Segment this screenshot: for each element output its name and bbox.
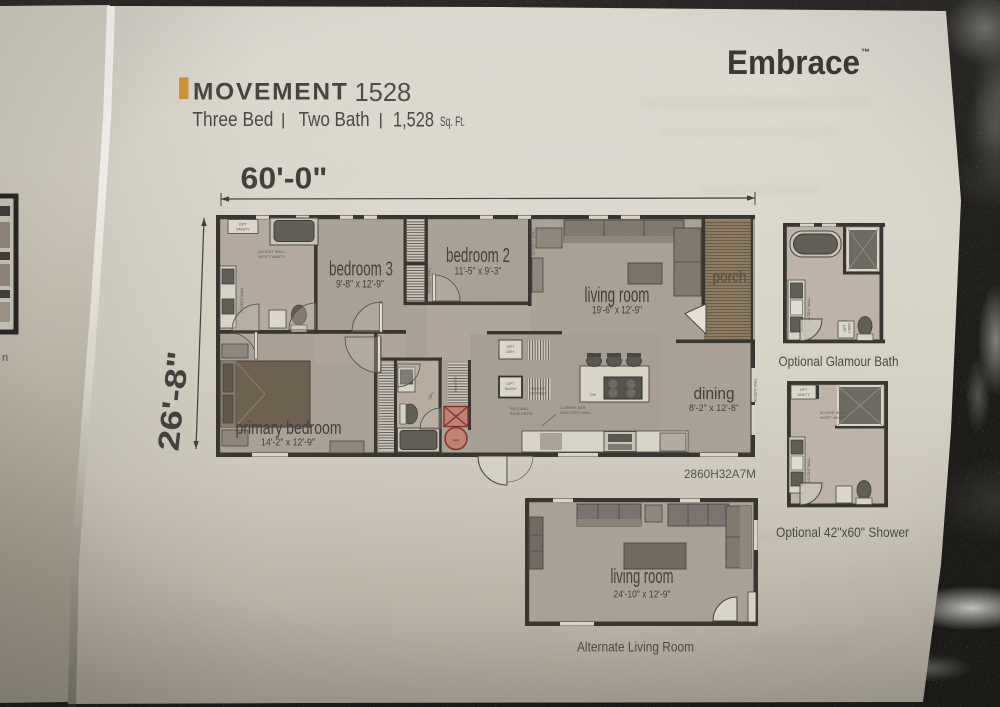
svg-text:bedroom 3: bedroom 3 bbox=[329, 259, 393, 281]
svg-text:ACCENT WALL: ACCENT WALL bbox=[258, 250, 285, 254]
svg-text:WH: WH bbox=[453, 438, 460, 443]
svg-text:|: | bbox=[281, 110, 285, 129]
svg-text:OPT: OPT bbox=[800, 388, 808, 392]
svg-text:VANITY: VANITY bbox=[236, 227, 250, 232]
svg-text:Two Bath: Two Bath bbox=[299, 109, 370, 131]
svg-text:ACCENT WALL: ACCENT WALL bbox=[820, 411, 845, 415]
svg-text:™: ™ bbox=[861, 47, 870, 57]
svg-text:9'-8" x 12'-9": 9'-8" x 12'-9" bbox=[336, 279, 384, 291]
svg-text:CORNER BAR: CORNER BAR bbox=[560, 406, 586, 410]
svg-text:2860H32A7M: 2860H32A7M bbox=[684, 467, 756, 481]
svg-text:PANTRY: PANTRY bbox=[531, 387, 546, 391]
svg-text:ACCENT WALL: ACCENT WALL bbox=[532, 229, 536, 256]
svg-text:1,528: 1,528 bbox=[393, 109, 434, 132]
svg-text:VANITY: VANITY bbox=[797, 393, 810, 397]
svg-text:24'-10" x 12'-9": 24'-10" x 12'-9" bbox=[614, 589, 671, 601]
svg-text:ACCENT WALL: ACCENT WALL bbox=[428, 267, 432, 294]
svg-text:REQ WALL: REQ WALL bbox=[510, 407, 529, 411]
svg-text:PANTRY: PANTRY bbox=[454, 376, 458, 392]
svg-text:11'-5" x 9'-3": 11'-5" x 9'-3" bbox=[455, 266, 502, 278]
svg-text:W/OPT VANITY: W/OPT VANITY bbox=[820, 416, 846, 420]
svg-text:Optional Glamour Bath: Optional Glamour Bath bbox=[779, 353, 899, 369]
svg-text:MOVEMENT: MOVEMENT bbox=[193, 79, 349, 106]
svg-text:60'-0": 60'-0" bbox=[241, 161, 328, 196]
svg-text:|: | bbox=[379, 110, 383, 129]
svg-text:ACCENT WALL: ACCENT WALL bbox=[807, 457, 811, 482]
svg-text:Sq. Ft.: Sq. Ft. bbox=[440, 114, 465, 129]
svg-text:W/ACCENT WALL: W/ACCENT WALL bbox=[560, 411, 591, 415]
svg-text:BASE PNTRI: BASE PNTRI bbox=[510, 412, 533, 416]
svg-text:Alternate Living Room: Alternate Living Room bbox=[577, 639, 694, 655]
svg-text:living room: living room bbox=[611, 566, 674, 588]
svg-text:WASH: WASH bbox=[505, 386, 517, 391]
svg-text:Three Bed: Three Bed bbox=[192, 109, 273, 131]
svg-text:Embrace: Embrace bbox=[727, 44, 860, 82]
svg-text:DRY: DRY bbox=[506, 349, 515, 354]
svg-text:8'-2" x 12'-8": 8'-2" x 12'-8" bbox=[689, 403, 739, 414]
svg-text:W/OPT VANITY: W/OPT VANITY bbox=[258, 255, 285, 259]
svg-text:DW: DW bbox=[590, 393, 597, 397]
svg-text:19'-6" x 12'-9": 19'-6" x 12'-9" bbox=[592, 305, 642, 317]
svg-text:primary bedroom: primary bedroom bbox=[236, 417, 342, 438]
svg-text:bedroom 2: bedroom 2 bbox=[446, 245, 510, 267]
svg-text:OPT W/D: OPT W/D bbox=[530, 392, 546, 396]
svg-text:n: n bbox=[2, 352, 8, 364]
svg-text:porch: porch bbox=[713, 269, 747, 286]
svg-text:dining: dining bbox=[694, 384, 735, 403]
svg-text:1528: 1528 bbox=[355, 79, 412, 107]
svg-text:LINEN: LINEN bbox=[848, 322, 852, 333]
svg-text:26'-8": 26'-8" bbox=[152, 350, 195, 453]
svg-text:ACCENT WALL: ACCENT WALL bbox=[754, 378, 758, 402]
svg-text:14'-2" x 12'-9": 14'-2" x 12'-9" bbox=[261, 437, 315, 449]
svg-text:OPT: OPT bbox=[843, 325, 847, 332]
svg-text:Optional 42"x60" Shower: Optional 42"x60" Shower bbox=[776, 524, 909, 540]
